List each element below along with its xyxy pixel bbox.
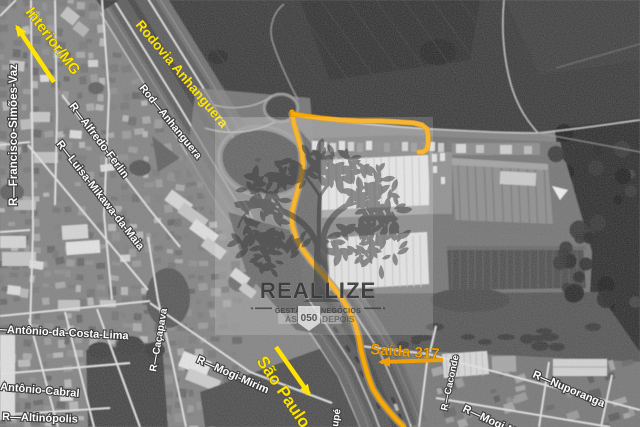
- svg-text:DEPOIS: DEPOIS: [322, 314, 355, 324]
- svg-text:R—Francisco-Simões-Vaz: R—Francisco-Simões-Vaz: [8, 64, 20, 206]
- svg-text:ÀS: ÀS: [285, 314, 297, 324]
- svg-text:050: 050: [301, 313, 318, 324]
- svg-text:REALLIZE: REALLIZE: [260, 278, 376, 303]
